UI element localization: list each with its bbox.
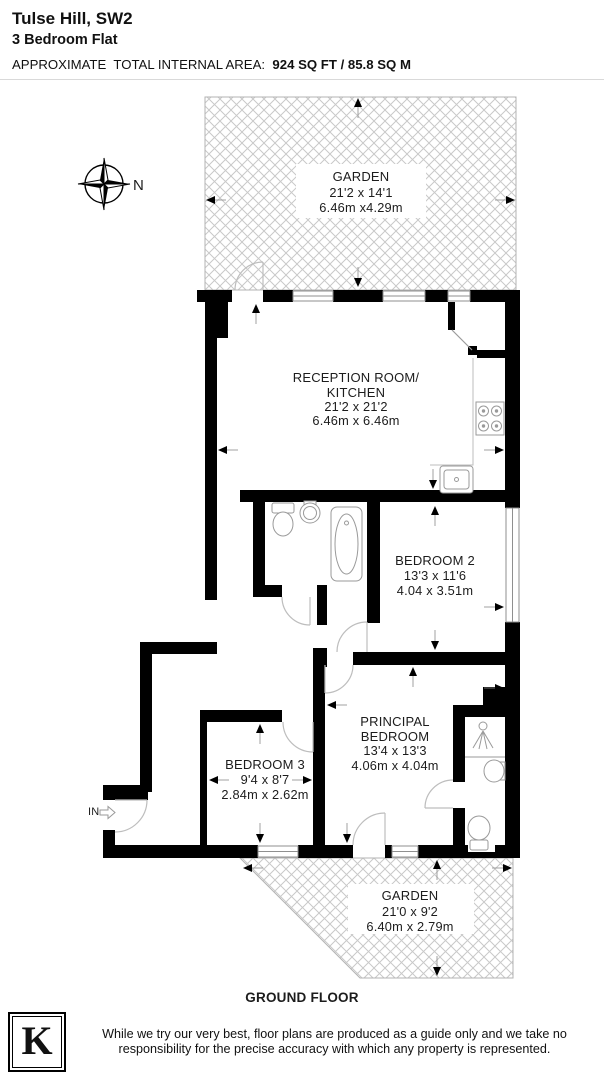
garden-bottom-area <box>240 858 513 978</box>
disclaimer-line-1: While we try our very best, floor plans … <box>73 1027 596 1043</box>
svg-text:6.46m x4.29m: 6.46m x4.29m <box>319 200 403 215</box>
entrance-arrow-icon <box>100 807 115 819</box>
bedroom3-label: BEDROOM 3 9'4 x 8'7 2.84m x 2.62m <box>221 757 308 802</box>
window <box>448 291 470 301</box>
bedroom3-door-arc <box>283 722 313 752</box>
floor-plan: N GARDEN 21'2 x 14'1 6.46m x4.29m RECEPT… <box>0 0 604 1080</box>
shower-icon <box>465 722 505 757</box>
kitchen-counter <box>430 358 473 465</box>
svg-text:2.84m x 2.62m: 2.84m x 2.62m <box>221 787 308 802</box>
svg-text:6.40m x 2.79m: 6.40m x 2.79m <box>366 919 453 934</box>
principal-door-arc <box>325 665 353 693</box>
ensuite-door-arc <box>425 780 453 808</box>
window <box>258 846 298 857</box>
svg-text:KITCHEN: KITCHEN <box>327 385 385 400</box>
ensuite-basin-icon <box>484 760 505 782</box>
svg-text:21'0 x 9'2: 21'0 x 9'2 <box>382 904 438 919</box>
svg-text:PRINCIPAL: PRINCIPAL <box>360 714 429 729</box>
disclaimer-line-2: responsibility for the precise accuracy … <box>73 1042 596 1058</box>
window <box>293 291 333 301</box>
entry-door-arc <box>115 800 147 832</box>
svg-text:13'3 x 11'6: 13'3 x 11'6 <box>404 568 466 583</box>
svg-text:BEDROOM 3: BEDROOM 3 <box>225 757 305 772</box>
ensuite-toilet-icon <box>468 816 490 850</box>
toilet-icon <box>272 503 294 536</box>
svg-text:21'2 x 21'2: 21'2 x 21'2 <box>324 399 387 414</box>
bedroom2-label: BEDROOM 2 13'3 x 11'6 4.04 x 3.51m <box>395 553 475 598</box>
svg-text:RECEPTION ROOM/: RECEPTION ROOM/ <box>293 370 420 385</box>
svg-text:13'4 x 13'3: 13'4 x 13'3 <box>363 743 426 758</box>
kitchen-sink-icon <box>440 466 473 493</box>
window <box>506 508 519 622</box>
principal-garden-door-arc <box>353 813 385 845</box>
entrance-label: IN <box>88 806 99 818</box>
svg-text:BEDROOM: BEDROOM <box>361 729 430 744</box>
bathroom-door-arc <box>282 597 310 625</box>
svg-text:4.04 x 3.51m: 4.04 x 3.51m <box>397 583 473 598</box>
principal-label: PRINCIPAL BEDROOM 13'4 x 13'3 4.06m x 4.… <box>351 714 438 773</box>
svg-text:21'2 x 14'1: 21'2 x 14'1 <box>329 185 392 200</box>
compass-north-label: N <box>133 177 144 194</box>
logo-letter: K <box>21 1021 52 1061</box>
svg-text:4.06m x 4.04m: 4.06m x 4.04m <box>351 758 438 773</box>
hob-icon <box>476 402 504 435</box>
compass-icon: N <box>78 158 144 210</box>
bedroom2-door-arc <box>337 622 367 652</box>
svg-text:9'4 x 8'7: 9'4 x 8'7 <box>241 772 290 787</box>
disclaimer-text: While we try our very best, floor plans … <box>73 1027 596 1058</box>
window <box>392 846 418 857</box>
svg-text:BEDROOM 2: BEDROOM 2 <box>395 553 475 568</box>
reception-label: RECEPTION ROOM/ KITCHEN 21'2 x 21'2 6.46… <box>293 370 420 428</box>
entrance: IN <box>88 806 115 819</box>
svg-text:GARDEN: GARDEN <box>333 169 390 184</box>
floor-label: GROUND FLOOR <box>245 990 358 1005</box>
window <box>383 291 425 301</box>
bathtub-icon <box>331 507 362 581</box>
basin-icon <box>300 501 320 523</box>
reception-corner-door <box>452 330 472 350</box>
svg-text:6.46m x 6.46m: 6.46m x 6.46m <box>312 413 399 428</box>
svg-text:GARDEN: GARDEN <box>382 888 439 903</box>
fixtures <box>272 358 505 850</box>
footer: K While we try our very best, floor plan… <box>8 1012 596 1072</box>
agency-logo: K <box>8 1012 66 1072</box>
